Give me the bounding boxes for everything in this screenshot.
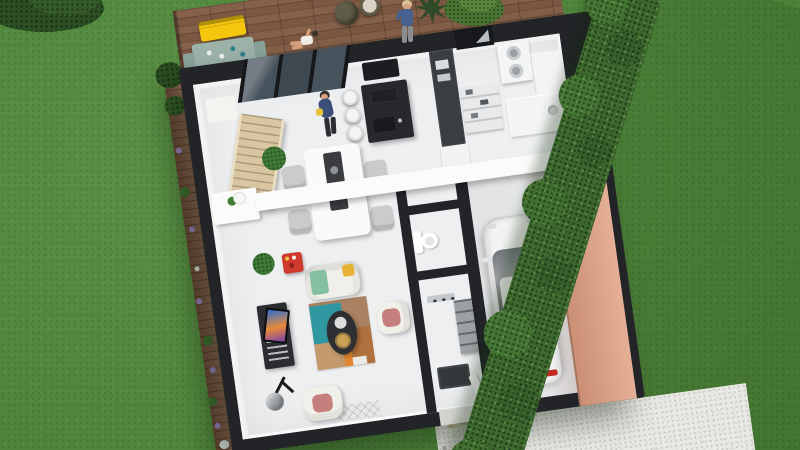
bottle bbox=[285, 256, 290, 261]
hedge-texture-blob bbox=[602, 27, 647, 72]
armchair-right bbox=[375, 299, 411, 335]
armchair-bottom bbox=[300, 383, 344, 422]
cup bbox=[219, 53, 225, 59]
dog-muzzle bbox=[448, 424, 454, 429]
tray-gold bbox=[334, 332, 352, 350]
toilet-seat bbox=[424, 236, 434, 246]
dining-chair bbox=[287, 208, 312, 235]
person-standing-outside bbox=[396, 0, 418, 44]
hedge-texture-blob bbox=[531, 250, 578, 297]
stored-item bbox=[471, 113, 479, 119]
sideboard bbox=[210, 187, 260, 225]
stair-landing bbox=[205, 95, 238, 123]
lamp-sphere bbox=[265, 392, 285, 412]
washer-dryer-stack bbox=[496, 40, 533, 84]
tray-white bbox=[334, 316, 348, 330]
dining-chair bbox=[370, 205, 395, 232]
hob bbox=[369, 87, 399, 105]
white-flowers bbox=[233, 192, 245, 204]
person-head bbox=[312, 30, 319, 37]
white-flowers bbox=[362, 0, 378, 14]
cushion bbox=[342, 263, 356, 277]
utility-shelving bbox=[460, 83, 504, 134]
person-leg bbox=[408, 26, 413, 42]
stored-item bbox=[480, 99, 489, 105]
bottle bbox=[289, 263, 295, 269]
floor-lamp bbox=[260, 371, 301, 416]
person-leg bbox=[402, 26, 407, 43]
cushion-pink bbox=[381, 307, 401, 327]
island-sink bbox=[371, 115, 397, 134]
person-torso bbox=[401, 9, 413, 26]
glass bbox=[230, 46, 236, 52]
person-bag bbox=[316, 108, 324, 116]
kitchen-island bbox=[361, 79, 415, 143]
washer-drum bbox=[506, 45, 522, 61]
stored-item bbox=[465, 89, 473, 95]
bar-cart bbox=[281, 252, 304, 275]
faucet bbox=[398, 118, 403, 123]
person-leg bbox=[331, 117, 337, 134]
lamp-arm bbox=[280, 380, 294, 393]
palm-shrub bbox=[444, 0, 508, 32]
television bbox=[263, 308, 290, 344]
wall-frame bbox=[437, 73, 451, 82]
throw-blanket bbox=[309, 269, 329, 295]
wall-frame bbox=[435, 59, 449, 70]
glass bbox=[240, 51, 246, 57]
cushion-pink bbox=[311, 393, 333, 414]
person-legs bbox=[291, 44, 303, 50]
floorplan-3d-view[interactable] bbox=[0, 0, 800, 450]
bottle bbox=[292, 255, 297, 260]
dryer-drum bbox=[508, 63, 524, 79]
cup bbox=[206, 50, 212, 56]
hedge-texture-blob bbox=[573, 129, 615, 171]
